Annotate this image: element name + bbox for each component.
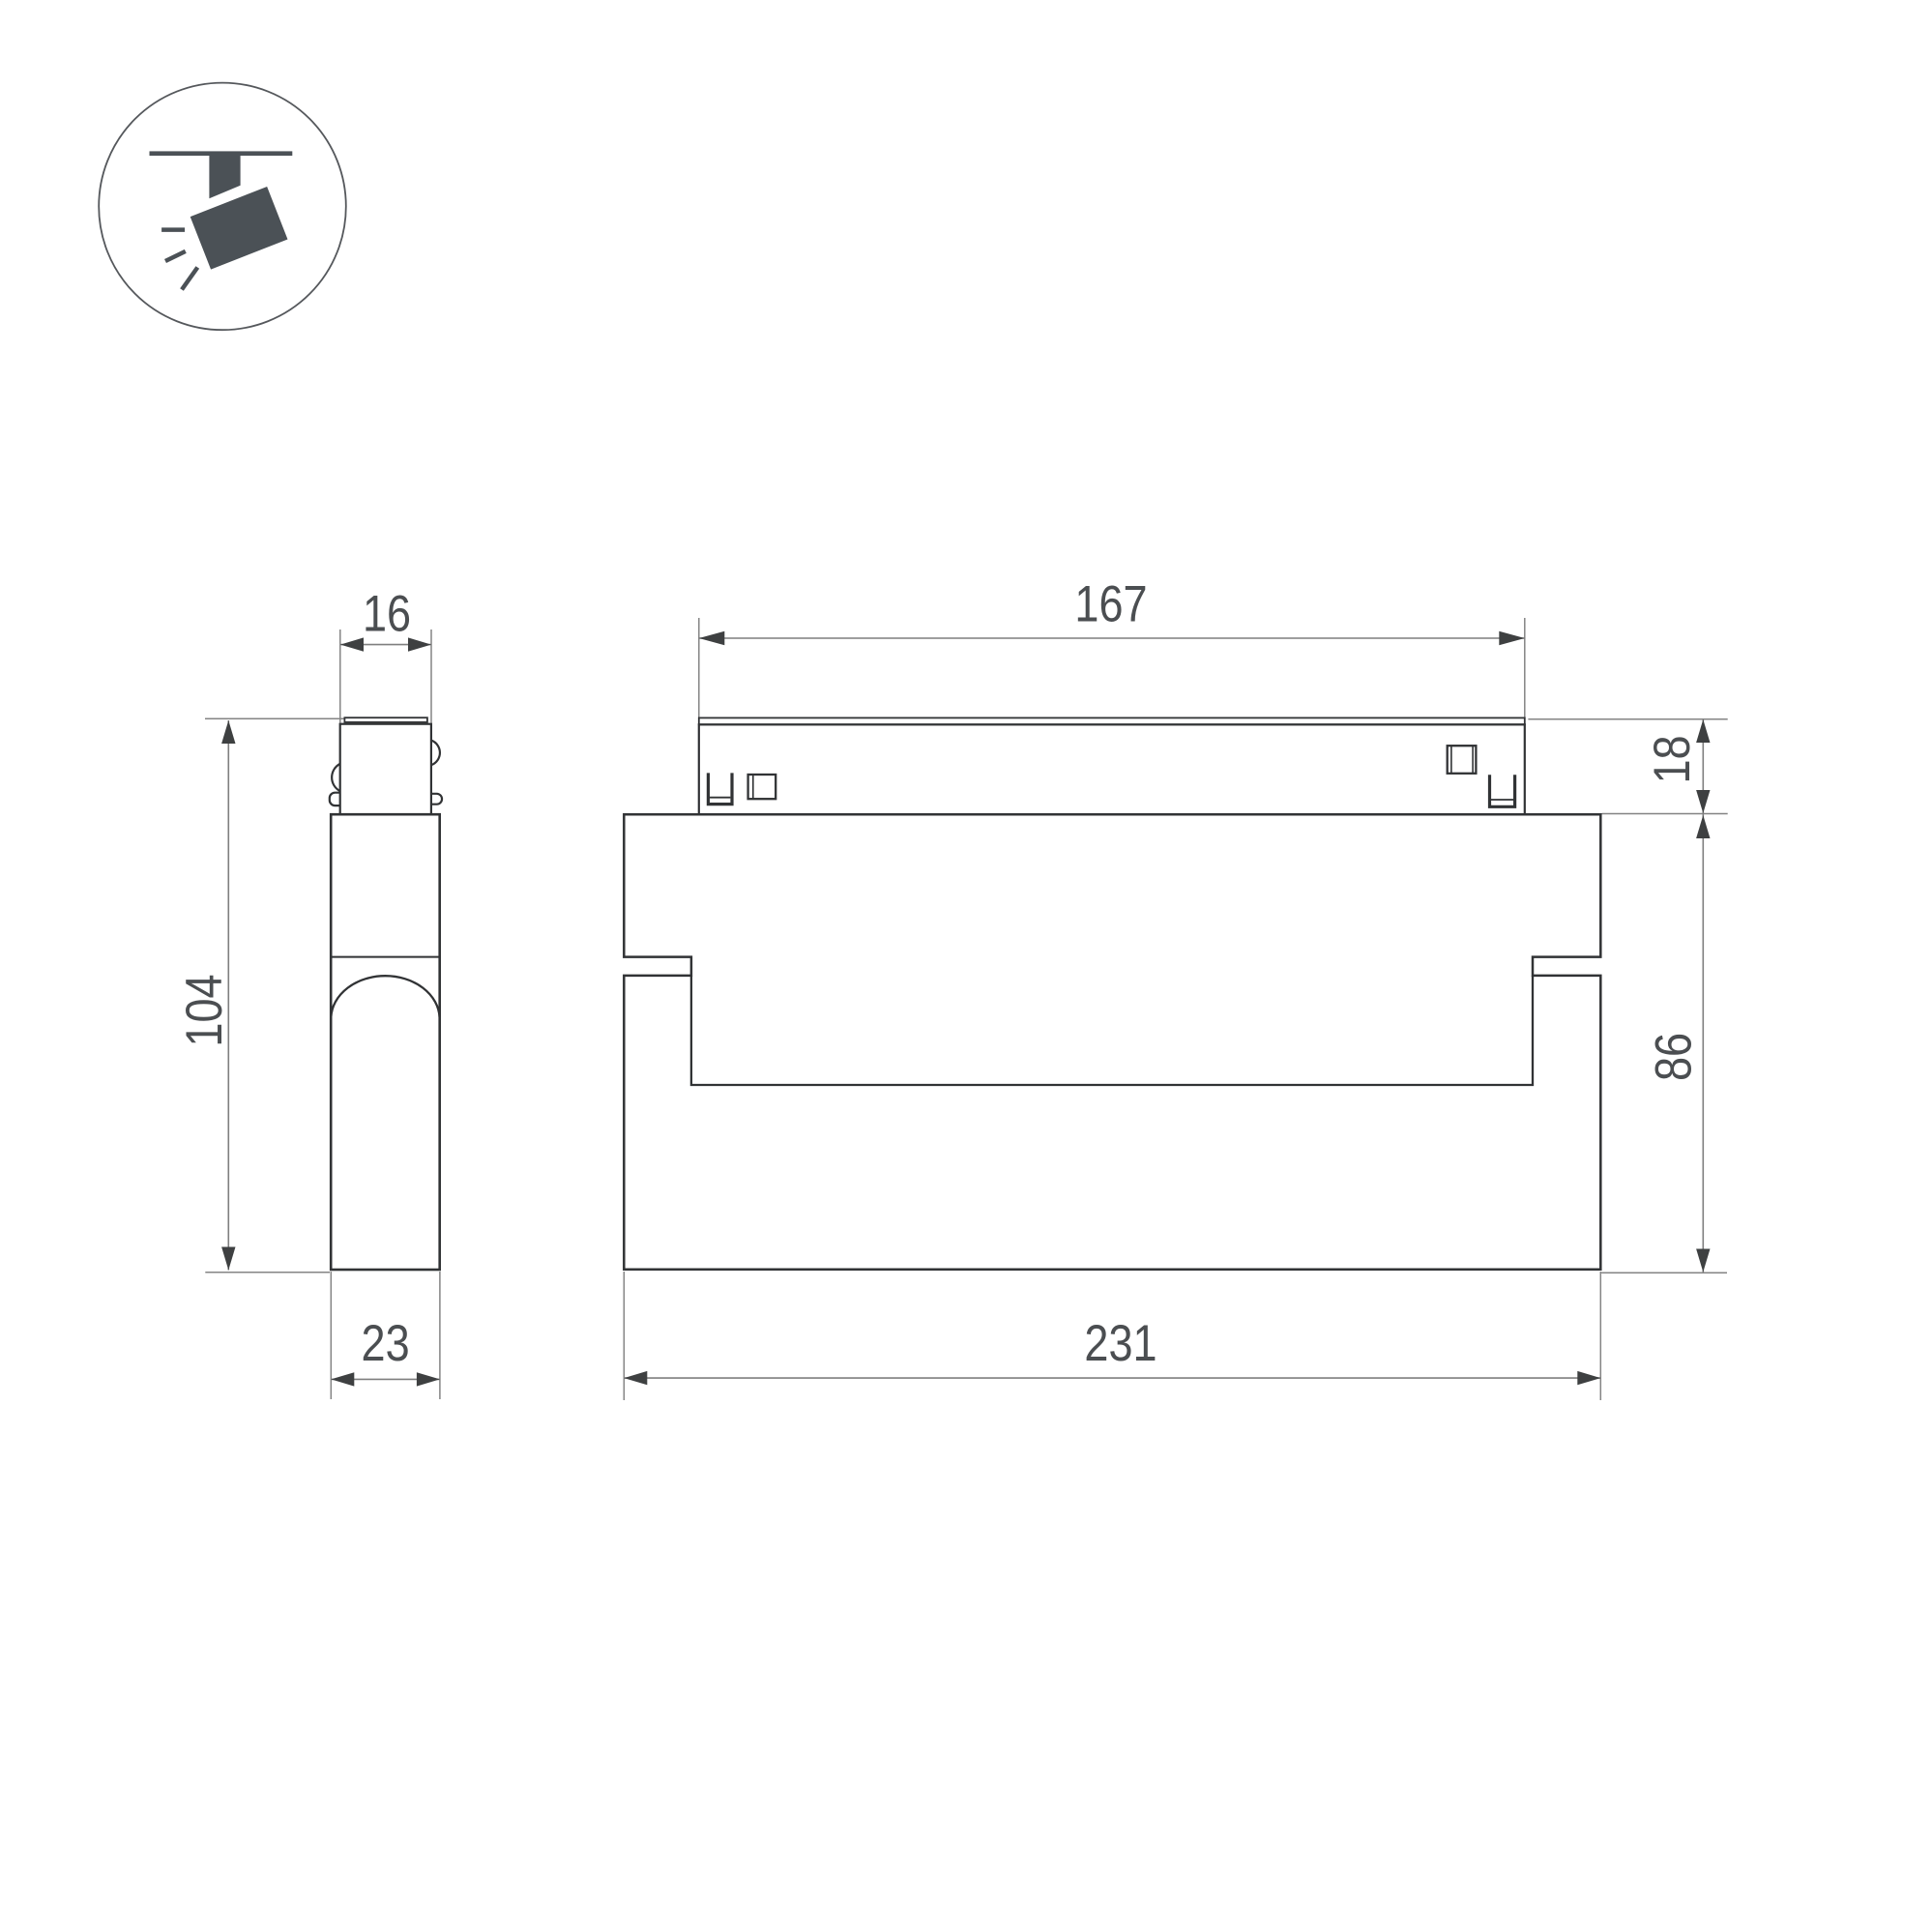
svg-text:23: 23 bbox=[362, 1314, 410, 1371]
svg-text:104: 104 bbox=[176, 974, 233, 1046]
svg-text:16: 16 bbox=[363, 585, 411, 642]
svg-text:86: 86 bbox=[1645, 1033, 1702, 1081]
svg-text:231: 231 bbox=[1084, 1315, 1156, 1372]
svg-text:18: 18 bbox=[1644, 735, 1701, 783]
svg-text:167: 167 bbox=[1074, 575, 1147, 632]
